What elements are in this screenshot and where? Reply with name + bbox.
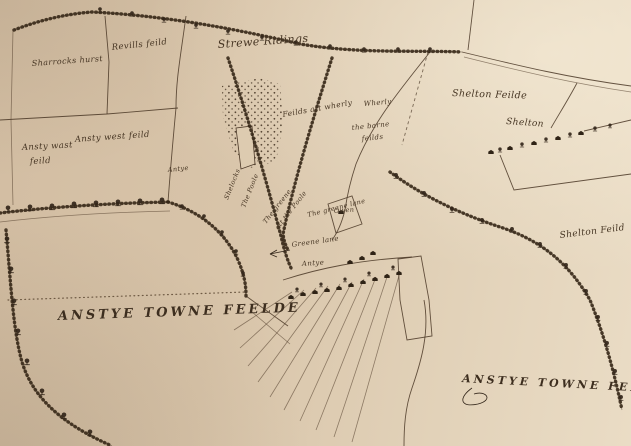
tree-icon	[4, 237, 10, 243]
house-icon	[396, 271, 401, 275]
label-anstye-towne-feeld-se: ANSTYE TOWNE FEELD	[461, 372, 631, 396]
house-icon	[555, 136, 560, 140]
tree-icon	[39, 389, 45, 395]
dashed-boundary	[402, 52, 428, 145]
strip-line	[352, 272, 400, 442]
house-icon	[384, 274, 389, 278]
road-south-side	[464, 57, 631, 92]
long-strip-close	[398, 256, 432, 340]
label-barne-feilds-2: feilds	[360, 133, 383, 143]
label-antye-village: Antye	[301, 258, 325, 268]
village-road-south	[404, 300, 426, 446]
map-left-edge-line	[11, 30, 13, 205]
label-greene-lane-diag: The greene lane	[307, 197, 367, 219]
label-anstye-towne-feelde-sw: ANSTYE TOWNE FEELDE	[56, 301, 301, 325]
antique-estate-map: Sharrocks hurst Revills feild Strewe Rid…	[0, 0, 631, 446]
anstye-village-houses	[288, 210, 401, 299]
hedge-left-edge	[6, 230, 112, 446]
woodland-stipple	[222, 78, 283, 169]
label-shelton-feild-edge: Shelton Feild	[559, 223, 625, 241]
label-ansty-west-feild: Ansty west feild	[74, 130, 151, 145]
map-labels: Sharrocks hurst Revills feild Strewe Rid…	[21, 32, 631, 396]
tree-icon	[520, 142, 524, 147]
strip-line	[316, 277, 376, 430]
tree-icon	[568, 132, 572, 137]
field-line	[468, 0, 474, 50]
house-icon	[312, 290, 317, 294]
label-revills-feild: Revills feild	[110, 37, 168, 53]
house-icon	[360, 280, 365, 284]
strip-line	[300, 279, 364, 421]
strip-line	[334, 274, 388, 437]
label-greene-lane: Greene lane	[291, 234, 339, 249]
estate-map-svg: Sharrocks hurst Revills feild Strewe Rid…	[0, 0, 631, 446]
field-line	[0, 108, 178, 120]
house-icon	[347, 260, 352, 264]
road-north-side	[462, 52, 631, 86]
label-ansty-wast-feild-2: feild	[29, 156, 52, 167]
house-icon	[578, 131, 583, 135]
tree-icon	[367, 272, 371, 276]
house-icon	[370, 251, 375, 255]
field-line	[105, 16, 109, 114]
tree-icon	[319, 283, 323, 287]
label-barne-feilds-1: the barne	[351, 120, 390, 132]
label-the-poole: The Poole	[239, 172, 260, 208]
dotted-boundary-line	[8, 292, 246, 300]
shelton-hamlet-houses	[488, 124, 612, 154]
hedge-west-road	[0, 202, 168, 213]
label-flourish	[463, 388, 487, 405]
hedge-to-village	[168, 202, 246, 296]
tree-icon	[544, 137, 548, 142]
label-antye-road: Antye	[166, 164, 189, 174]
burgage-strips	[234, 272, 400, 442]
tree-icon	[115, 200, 121, 206]
house-icon	[359, 256, 364, 260]
hedge-funnel-east	[283, 58, 332, 250]
house-icon	[288, 295, 293, 299]
road-branch-to-shelton	[551, 83, 577, 128]
road-below-hedgerow	[0, 211, 170, 222]
label-shelton: Shelton	[506, 117, 544, 130]
house-icon	[507, 146, 512, 150]
house-icon	[372, 277, 377, 281]
tree-icon	[343, 278, 347, 282]
label-ansty-wast-feild-1: Ansty wast	[21, 140, 74, 153]
tree-icon	[391, 266, 395, 270]
house-icon	[531, 141, 536, 145]
label-strewe-ridings: Strewe Ridings	[217, 32, 309, 51]
tree-icon	[498, 147, 502, 152]
tree-icon	[593, 126, 597, 131]
strip-line	[248, 288, 316, 366]
label-shelton-feilde: Shelton Feilde	[452, 88, 527, 102]
label-feilds-att-wherly: Feilds att wherly	[281, 98, 353, 119]
house-icon	[336, 286, 341, 290]
shelton-enclosure	[584, 120, 631, 131]
hedgerow-trees	[4, 7, 623, 436]
house-icon	[324, 288, 329, 292]
tree-icon	[295, 288, 299, 292]
label-sharrocks-hurst: Sharrocks hurst	[32, 54, 104, 68]
shelton-enclosure	[500, 155, 631, 190]
label-shelocks: Shelocks	[222, 167, 242, 200]
house-icon	[348, 283, 353, 287]
house-icon	[488, 150, 493, 154]
tree-icon	[24, 359, 30, 365]
